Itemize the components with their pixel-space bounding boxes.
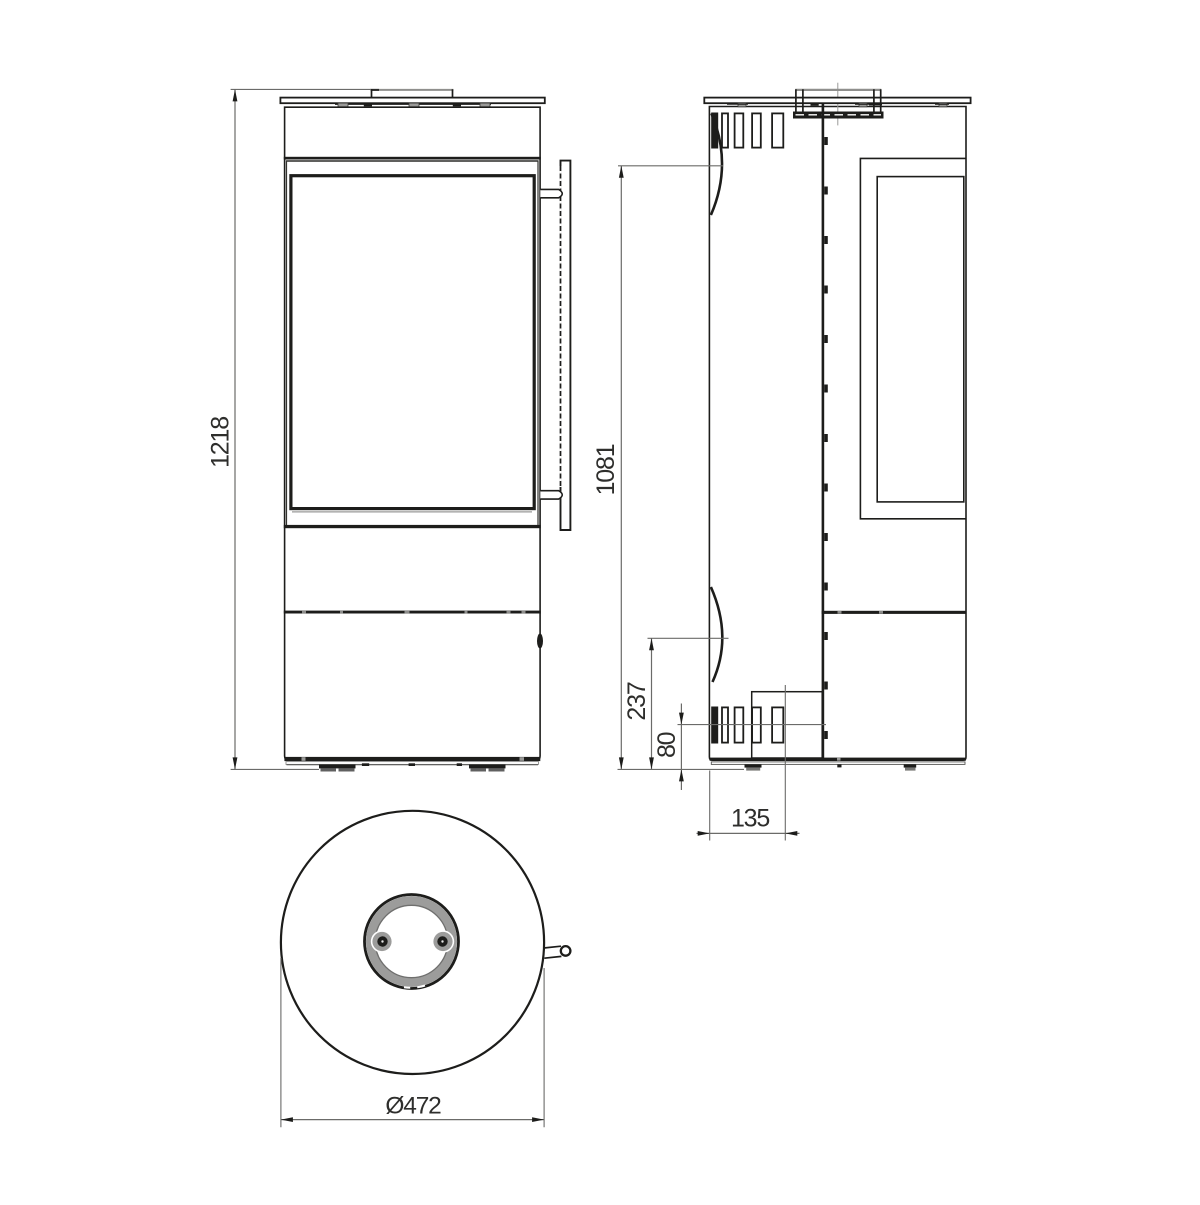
svg-text:80: 80 xyxy=(653,732,681,758)
svg-text:1218: 1218 xyxy=(207,417,235,468)
svg-text:135: 135 xyxy=(731,805,769,833)
svg-text:237: 237 xyxy=(623,682,651,720)
svg-text:1081: 1081 xyxy=(592,444,620,495)
svg-text:Ø472: Ø472 xyxy=(385,1092,441,1119)
